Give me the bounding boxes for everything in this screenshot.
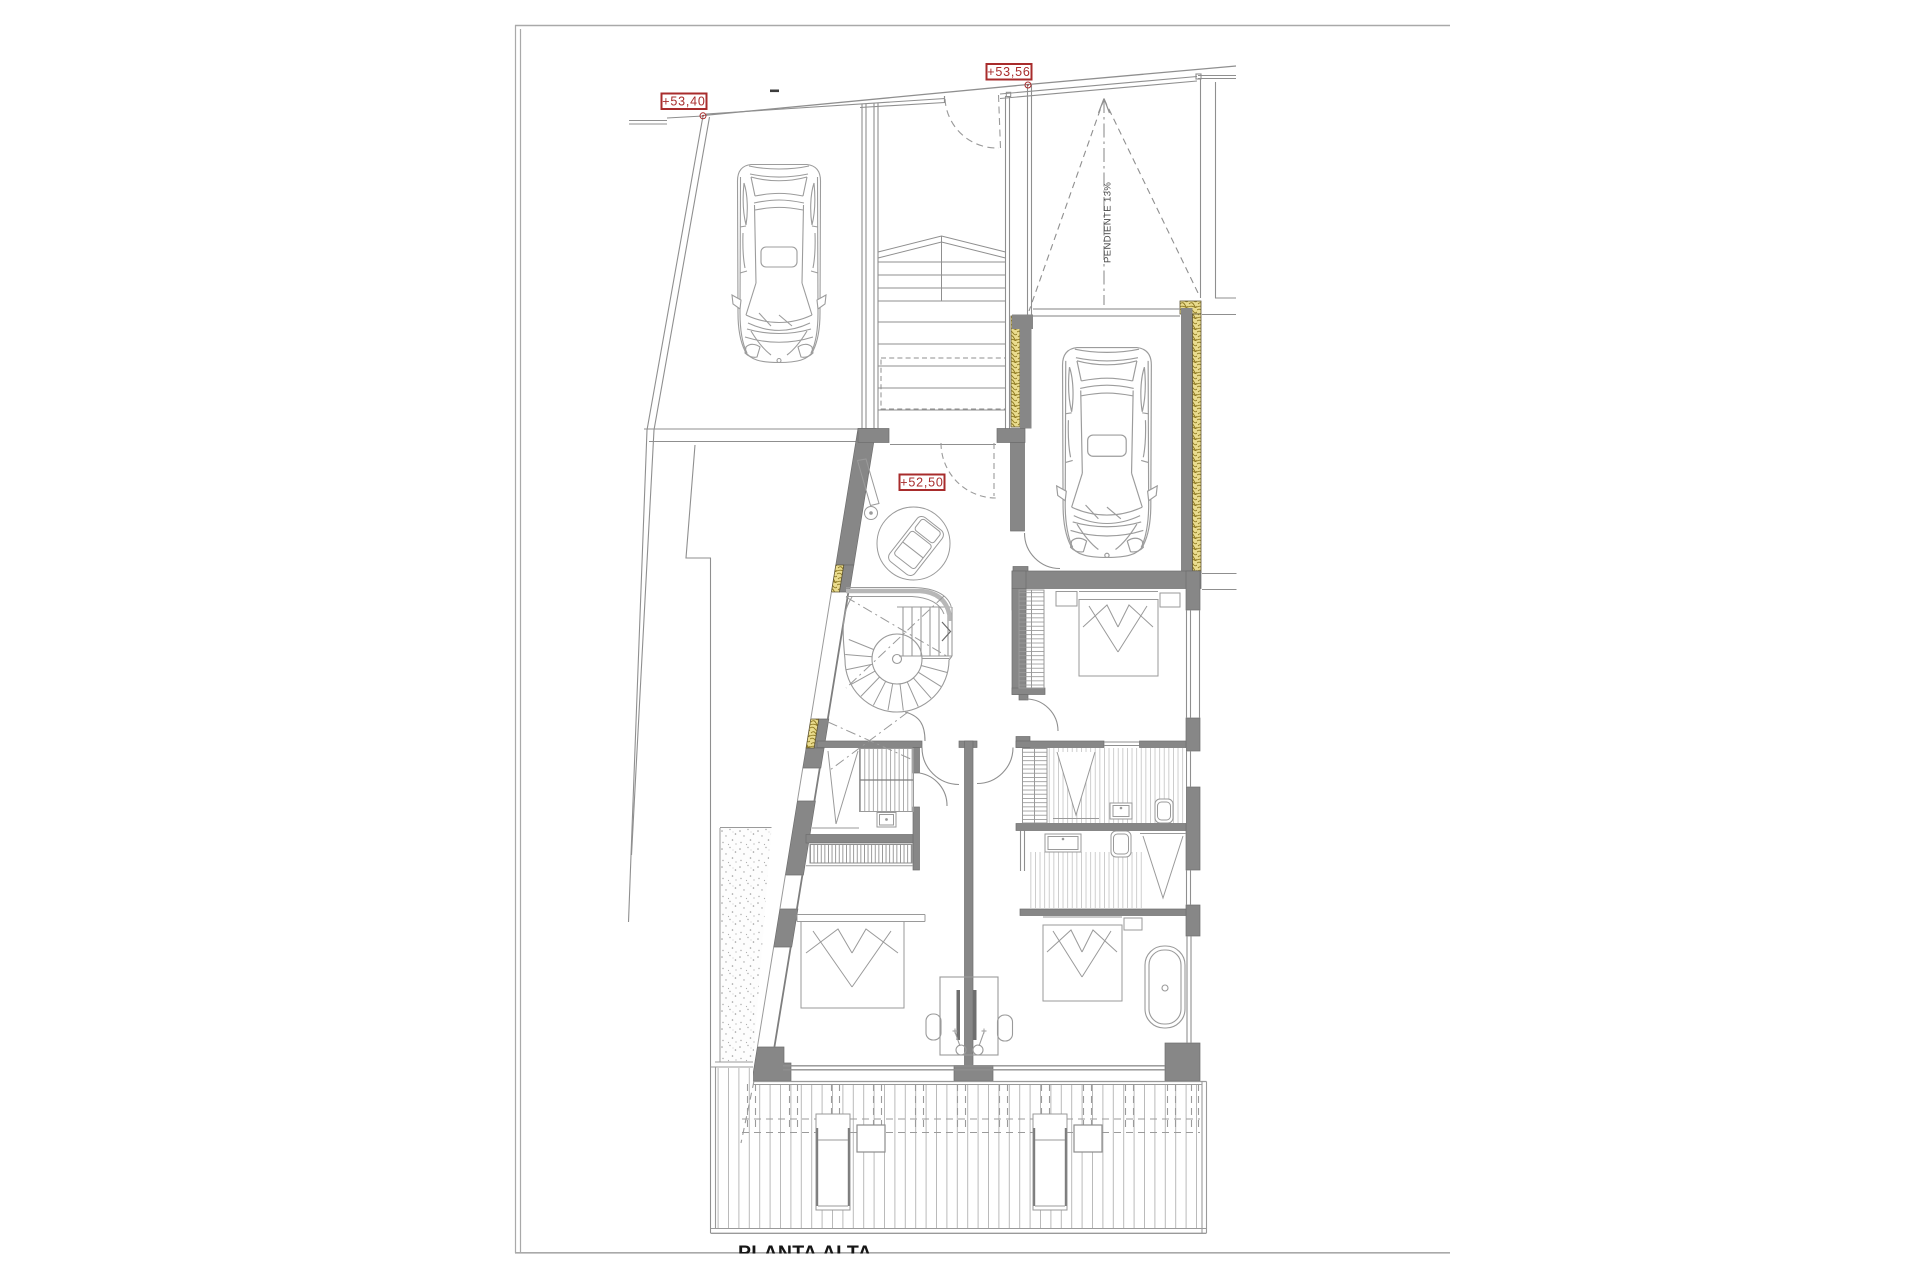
svg-text:+53,56: +53,56: [987, 65, 1030, 79]
svg-text:+52,50: +52,50: [900, 476, 943, 490]
svg-text:+53,40: +53,40: [662, 95, 705, 109]
svg-text:PENDIENTE 13%: PENDIENTE 13%: [1103, 182, 1114, 263]
